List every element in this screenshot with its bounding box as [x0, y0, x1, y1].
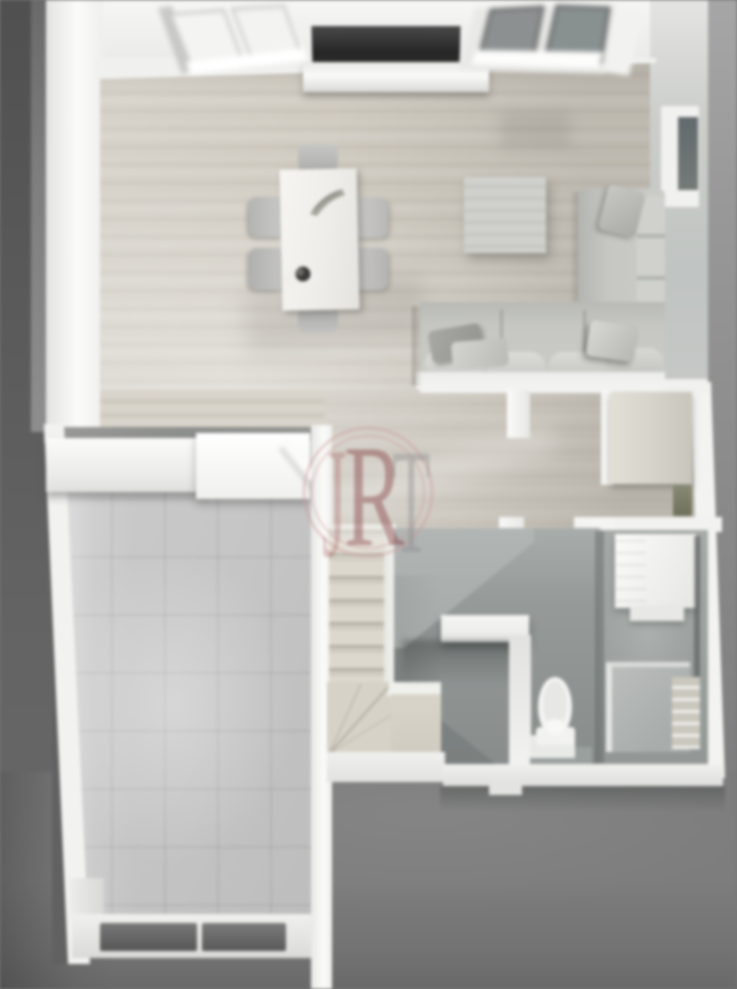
- svg-text:J: J: [322, 420, 347, 565]
- svg-text:R: R: [344, 420, 404, 565]
